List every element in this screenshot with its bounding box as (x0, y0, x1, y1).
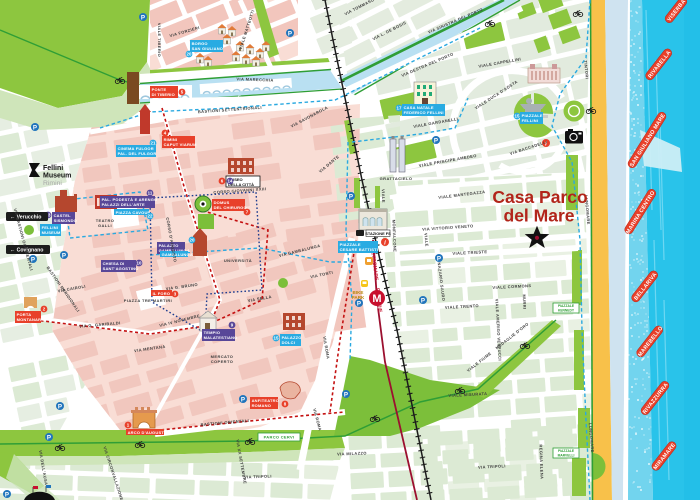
svg-text:COPERTO: COPERTO (211, 359, 234, 364)
svg-text:11: 11 (148, 191, 153, 196)
svg-text:ROMANO: ROMANO (252, 403, 271, 408)
svg-text:MALATESTIANO: MALATESTIANO (204, 335, 238, 340)
svg-text:P: P (288, 30, 292, 37)
svg-text:Rimini: Rimini (43, 180, 62, 187)
svg-text:PIAZZA TRE MARTIRI: PIAZZA TRE MARTIRI (124, 298, 172, 303)
svg-text:IL FORO: IL FORO (153, 291, 171, 296)
svg-text:P: P (47, 434, 51, 441)
svg-text:15: 15 (515, 114, 520, 119)
svg-text:DOLCI: DOLCI (282, 340, 295, 345)
svg-text:Museum: Museum (43, 173, 71, 180)
svg-text:STAZIONE FS: STAZIONE FS (365, 231, 391, 236)
svg-text:P: P (437, 255, 441, 262)
svg-text:P: P (33, 124, 37, 131)
svg-text:P: P (344, 391, 348, 398)
svg-text:P: P (241, 396, 245, 403)
svg-text:20: 20 (187, 52, 192, 57)
svg-text:15: 15 (274, 336, 279, 341)
svg-text:17: 17 (397, 106, 402, 111)
svg-text:PARK: PARK (352, 295, 365, 300)
svg-text:SISMONDO: SISMONDO (54, 218, 77, 223)
svg-text:P: P (58, 403, 62, 410)
svg-text:VIA TRIPOLI: VIA TRIPOLI (244, 474, 272, 480)
svg-text:PAL. DEL FULGOR: PAL. DEL FULGOR (118, 151, 157, 156)
svg-text:10: 10 (137, 261, 142, 266)
svg-text:METROMARE: METROMARE (368, 306, 385, 310)
svg-text:M: M (372, 293, 381, 305)
svg-text:Fellini: Fellini (43, 165, 63, 172)
svg-text:P: P (62, 252, 66, 259)
svg-text:PARCO CERVI: PARCO CERVI (264, 435, 295, 440)
svg-text:P: P (141, 14, 145, 21)
svg-text:UNIVERSITÀ: UNIVERSITÀ (224, 258, 252, 263)
svg-text:del Mare: del Mare (504, 206, 575, 226)
svg-text:ARCO D’AUGUSTO: ARCO D’AUGUSTO (128, 430, 168, 435)
svg-text:14: 14 (228, 179, 233, 184)
svg-text:SANT’AGOSTINO: SANT’AGOSTINO (103, 266, 139, 271)
svg-text:GRATTACIELO: GRATTACIELO (380, 176, 413, 181)
svg-text:Casa Parco: Casa Parco (492, 187, 587, 207)
svg-text:P: P (357, 300, 361, 307)
svg-text:DI TIBERIO: DI TIBERIO (152, 92, 175, 97)
svg-text:FEDERICO FELLINI: FEDERICO FELLINI (404, 110, 444, 115)
svg-text:P: P (349, 193, 353, 200)
svg-text:PIAZZA CAVOUR: PIAZZA CAVOUR (116, 210, 151, 215)
svg-text:DEL CHIRURGO: DEL CHIRURGO (214, 205, 247, 210)
svg-text:21: 21 (151, 141, 156, 146)
svg-text:MURRI: MURRI (522, 294, 528, 309)
svg-text:VIALE TIBERIO: VIALE TIBERIO (157, 23, 162, 57)
svg-text:MUSEUM: MUSEUM (42, 230, 61, 235)
svg-text:VIALE: VIALE (381, 189, 386, 203)
svg-text:SAN GIULIANO: SAN GIULIANO (192, 46, 224, 51)
svg-text:P: P (5, 491, 9, 498)
svg-text:CESARE BATTISTI: CESARE BATTISTI (340, 247, 378, 252)
svg-text:PALAZZI DELL’ARTE: PALAZZI DELL’ARTE (102, 202, 145, 207)
svg-text:VIA MILAZZO: VIA MILAZZO (337, 450, 367, 456)
svg-text:MARVELLI: MARVELLI (558, 454, 575, 458)
svg-text:CAPUT VIARUM: CAPUT VIARUM (164, 142, 198, 147)
svg-text:KENNEDY: KENNEDY (558, 309, 575, 313)
svg-text:20: 20 (190, 238, 195, 243)
svg-text:GALLI: GALLI (98, 223, 112, 228)
svg-text:FELLINI: FELLINI (522, 118, 539, 123)
svg-text:P: P (434, 137, 438, 144)
svg-text:22: 22 (148, 214, 153, 219)
svg-text:MONTANARA: MONTANARA (17, 317, 45, 322)
svg-text:P: P (421, 297, 425, 304)
